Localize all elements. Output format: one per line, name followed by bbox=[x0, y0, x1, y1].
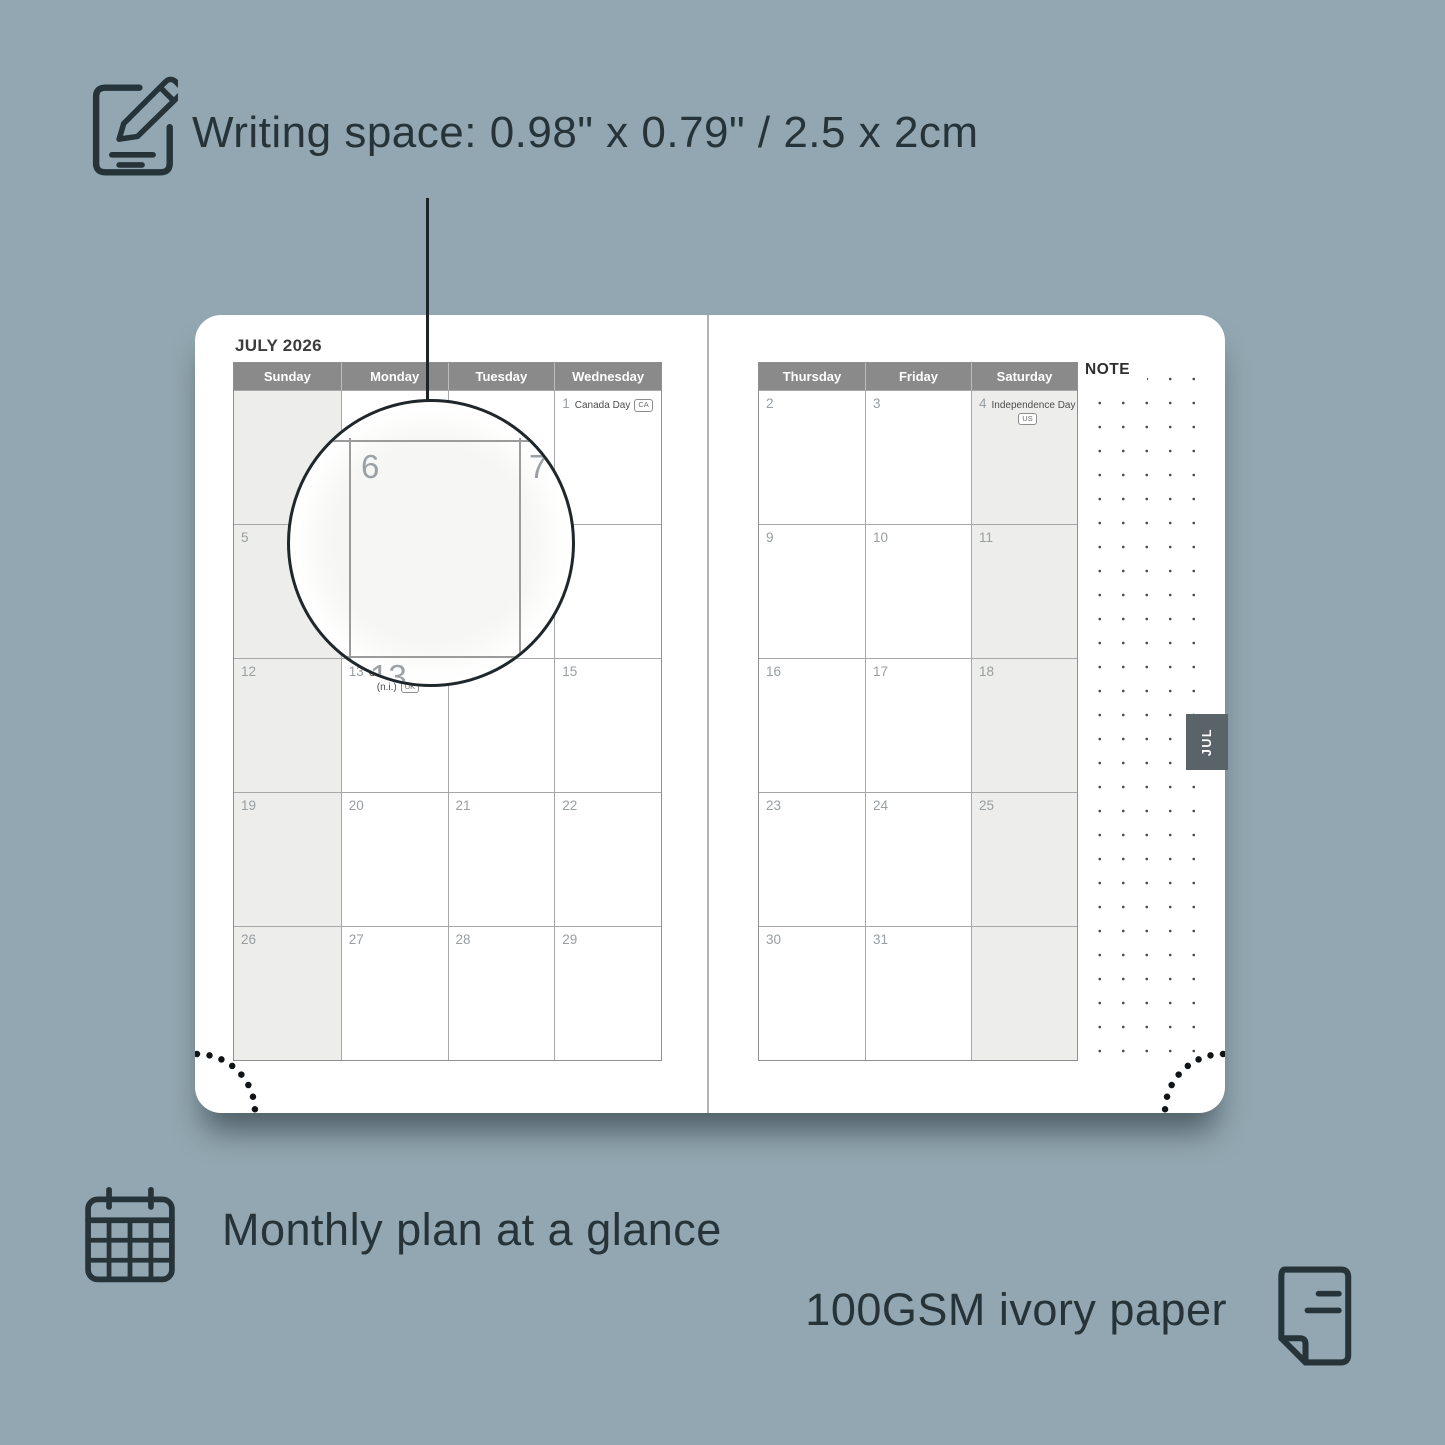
monthly-plan-text: Monthly plan at a glance bbox=[222, 1204, 722, 1256]
day-cell: 9 bbox=[759, 524, 865, 658]
day-cell: 21 bbox=[448, 792, 555, 926]
day-cell: 22 bbox=[554, 792, 661, 926]
page-icon bbox=[1272, 1264, 1352, 1368]
day-cell: 11 bbox=[971, 524, 1077, 658]
day-header-wednesday: Wednesday bbox=[554, 363, 661, 390]
day-cell-independence-day: 4Independence Day US bbox=[971, 390, 1077, 524]
magnified-grid-line bbox=[290, 656, 572, 658]
holiday-label: Canada Day bbox=[575, 400, 631, 411]
day-cell: 19 bbox=[234, 792, 341, 926]
day-cell: 12 bbox=[234, 658, 341, 792]
day-header-monday: Monday bbox=[341, 363, 448, 390]
magnified-grid-line bbox=[519, 438, 521, 660]
day-cell-canada-day: 1Canada DayCA bbox=[554, 390, 661, 524]
magnifier-circle: 6 7 13 bbox=[287, 399, 575, 687]
day-cell: 16 bbox=[759, 658, 865, 792]
day-cell: 20 bbox=[341, 792, 448, 926]
day-cell bbox=[971, 926, 1077, 1060]
day-header-tuesday: Tuesday bbox=[448, 363, 555, 390]
product-image-canvas: Writing space: 0.98" x 0.79" / 2.5 x 2cm… bbox=[0, 0, 1445, 1445]
day-cell: 2 bbox=[759, 390, 865, 524]
magnified-grid-line bbox=[349, 438, 351, 660]
day-cell: 23 bbox=[759, 792, 865, 926]
day-cell: 30 bbox=[759, 926, 865, 1060]
month-title: JULY 2026 bbox=[235, 336, 322, 356]
day-cell: 29 bbox=[554, 926, 661, 1060]
paper-text: 100GSM ivory paper bbox=[805, 1284, 1227, 1336]
magnified-day-number: 13 bbox=[370, 658, 407, 687]
note-dot-grid bbox=[1082, 360, 1200, 1060]
country-badge: CA bbox=[634, 399, 652, 412]
day-cell: 31 bbox=[865, 926, 971, 1060]
day-cell: 24 bbox=[865, 792, 971, 926]
day-header-sunday: Sunday bbox=[234, 363, 341, 390]
day-cell: 17 bbox=[865, 658, 971, 792]
magnified-day-number: 7 bbox=[529, 448, 547, 486]
day-header-friday: Friday bbox=[865, 363, 971, 390]
holiday-label: Independence Day bbox=[992, 400, 1076, 411]
day-cell: 15 bbox=[554, 658, 661, 792]
center-fold bbox=[707, 315, 709, 1113]
magnified-grid-line bbox=[290, 440, 572, 442]
day-cell: 10 bbox=[865, 524, 971, 658]
right-calendar-grid: Thursday Friday Saturday 2 3 4Independen… bbox=[758, 362, 1078, 1061]
day-header-saturday: Saturday bbox=[971, 363, 1077, 390]
day-cell: 3 bbox=[865, 390, 971, 524]
day-cell: 28 bbox=[448, 926, 555, 1060]
callout-stem-line bbox=[426, 198, 429, 402]
day-header-thursday: Thursday bbox=[759, 363, 865, 390]
day-cell: 18 bbox=[971, 658, 1077, 792]
dotted-corner-arc-left bbox=[195, 1039, 269, 1113]
day-cell: 25 bbox=[971, 792, 1077, 926]
country-badge: US bbox=[1018, 413, 1036, 426]
calendar-grid-icon bbox=[82, 1186, 178, 1286]
day-cell: 27 bbox=[341, 926, 448, 1060]
note-label: NOTE bbox=[1085, 361, 1147, 383]
month-tab-jul: JUL bbox=[1186, 714, 1228, 770]
pencil-note-icon bbox=[86, 72, 178, 176]
magnified-day-number: 6 bbox=[361, 448, 379, 486]
dotted-corner-arc-right bbox=[1151, 1039, 1225, 1113]
writing-space-text: Writing space: 0.98" x 0.79" / 2.5 x 2cm bbox=[192, 108, 979, 158]
